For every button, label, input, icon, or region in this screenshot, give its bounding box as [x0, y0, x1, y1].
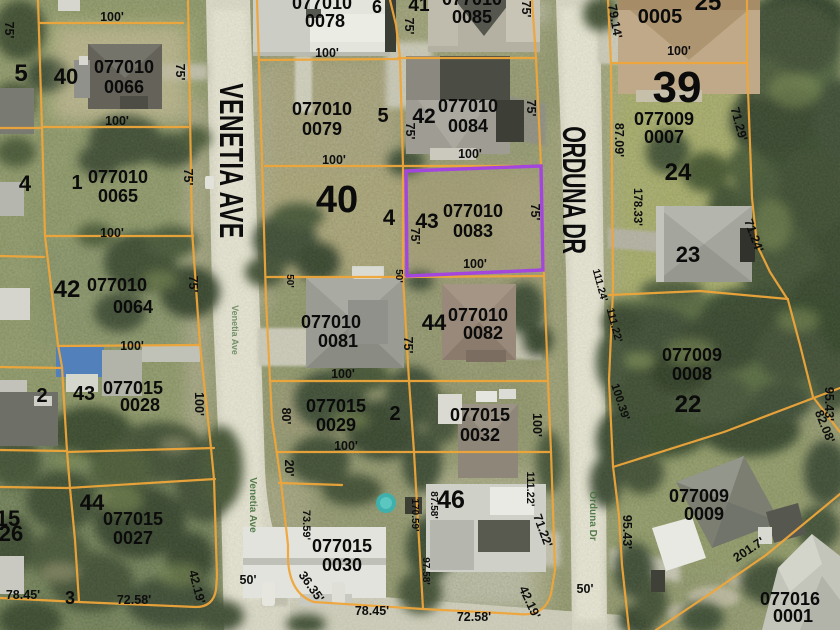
svg-text:25: 25 — [695, 0, 722, 16]
svg-text:50': 50' — [284, 274, 295, 288]
svg-text:44: 44 — [422, 310, 447, 335]
svg-text:100': 100' — [315, 46, 339, 60]
svg-text:22: 22 — [675, 391, 702, 418]
svg-text:72.58': 72.58' — [117, 593, 151, 607]
svg-text:2: 2 — [389, 403, 400, 425]
svg-text:2: 2 — [36, 385, 47, 407]
svg-text:87.09': 87.09' — [612, 123, 626, 157]
svg-text:077010: 077010 — [94, 57, 154, 77]
svg-text:0032: 0032 — [460, 425, 500, 445]
svg-text:077015: 077015 — [306, 396, 366, 416]
svg-text:0065: 0065 — [98, 186, 138, 206]
svg-text:6: 6 — [372, 0, 382, 17]
svg-text:0085: 0085 — [452, 7, 492, 27]
svg-text:0081: 0081 — [318, 331, 358, 351]
svg-text:41: 41 — [408, 0, 430, 16]
svg-text:24: 24 — [665, 159, 692, 186]
svg-text:0030: 0030 — [322, 555, 362, 575]
svg-text:5: 5 — [377, 105, 388, 127]
svg-text:0009: 0009 — [684, 504, 724, 524]
svg-text:0084: 0084 — [448, 116, 488, 136]
svg-text:077015: 077015 — [312, 536, 372, 556]
svg-text:100': 100' — [458, 147, 482, 161]
svg-text:100': 100' — [322, 153, 346, 167]
svg-text:75': 75' — [402, 18, 416, 35]
svg-text:111.22': 111.22' — [524, 471, 536, 506]
svg-text:077010: 077010 — [448, 305, 508, 325]
svg-text:077009: 077009 — [662, 345, 722, 365]
svg-text:50': 50' — [393, 269, 404, 283]
svg-text:75': 75' — [519, 1, 533, 18]
svg-text:0079: 0079 — [302, 119, 342, 139]
svg-text:4: 4 — [19, 171, 32, 196]
svg-text:0007: 0007 — [644, 127, 684, 147]
svg-text:100': 100' — [334, 439, 358, 453]
svg-text:077010: 077010 — [438, 96, 498, 116]
svg-text:50': 50' — [577, 582, 594, 596]
svg-text:0027: 0027 — [113, 528, 153, 548]
svg-text:97.58': 97.58' — [420, 557, 431, 584]
svg-text:23: 23 — [676, 242, 700, 267]
svg-text:0028: 0028 — [120, 395, 160, 415]
svg-text:0008: 0008 — [672, 364, 712, 384]
svg-text:0083: 0083 — [453, 221, 493, 241]
svg-text:077009: 077009 — [669, 486, 729, 506]
svg-text:Venetia Ave: Venetia Ave — [247, 477, 258, 533]
svg-text:42: 42 — [54, 276, 81, 303]
svg-text:100': 100' — [105, 114, 129, 128]
svg-text:75': 75' — [186, 276, 200, 293]
svg-text:46: 46 — [437, 486, 465, 514]
svg-text:1: 1 — [71, 172, 82, 194]
svg-text:75': 75' — [528, 204, 542, 221]
svg-text:87.58': 87.58' — [428, 491, 439, 518]
svg-text:43: 43 — [73, 383, 95, 405]
svg-text:077010: 077010 — [292, 99, 352, 119]
svg-text:0029: 0029 — [316, 415, 356, 435]
svg-text:39: 39 — [653, 63, 702, 112]
svg-text:Orduna Dr: Orduna Dr — [587, 491, 598, 541]
svg-text:0078: 0078 — [305, 11, 345, 31]
svg-text:78.45': 78.45' — [355, 604, 389, 618]
svg-text:44: 44 — [80, 490, 105, 515]
svg-text:4: 4 — [383, 205, 396, 230]
svg-text:75': 75' — [524, 100, 538, 117]
svg-text:077010: 077010 — [301, 312, 361, 332]
svg-text:73.59': 73.59' — [300, 510, 312, 541]
svg-text:170.59': 170.59' — [409, 499, 420, 532]
svg-text:100': 100' — [120, 339, 144, 353]
svg-text:75': 75' — [2, 22, 16, 39]
svg-text:0066: 0066 — [104, 77, 144, 97]
svg-text:3: 3 — [65, 588, 75, 608]
svg-text:100': 100' — [463, 257, 487, 271]
svg-text:20': 20' — [282, 460, 296, 477]
svg-text:75': 75' — [173, 64, 187, 81]
svg-text:ORDUNA DR: ORDUNA DR — [556, 126, 593, 254]
svg-text:80': 80' — [279, 408, 293, 425]
svg-text:077010: 077010 — [88, 167, 148, 187]
svg-text:0082: 0082 — [463, 323, 503, 343]
svg-text:077010: 077010 — [443, 201, 503, 221]
svg-text:100': 100' — [331, 367, 355, 381]
svg-text:75': 75' — [401, 337, 415, 354]
svg-text:0064: 0064 — [113, 297, 153, 317]
svg-text:077015: 077015 — [103, 509, 163, 529]
svg-text:100': 100' — [667, 44, 691, 58]
svg-text:78.45': 78.45' — [6, 588, 40, 602]
svg-text:0005: 0005 — [638, 6, 683, 28]
svg-text:100': 100' — [100, 226, 124, 240]
svg-text:95.43': 95.43' — [620, 515, 634, 549]
svg-text:40: 40 — [316, 179, 358, 221]
svg-text:0001: 0001 — [773, 606, 813, 626]
svg-text:100': 100' — [100, 10, 124, 24]
svg-text:75': 75' — [408, 228, 422, 245]
svg-text:75': 75' — [403, 123, 417, 140]
svg-text:077009: 077009 — [634, 109, 694, 129]
svg-text:5: 5 — [14, 60, 27, 87]
svg-text:26: 26 — [0, 521, 23, 546]
svg-text:72.58': 72.58' — [457, 610, 491, 624]
svg-text:100': 100' — [530, 413, 544, 437]
svg-text:50': 50' — [240, 573, 257, 587]
svg-text:75': 75' — [181, 169, 195, 186]
svg-text:077015: 077015 — [450, 405, 510, 425]
svg-text:VENETIA AVE: VENETIA AVE — [212, 83, 249, 238]
svg-text:40: 40 — [54, 64, 78, 89]
svg-text:95.43': 95.43' — [822, 387, 836, 421]
svg-text:100': 100' — [192, 392, 206, 416]
svg-text:Venetia Ave: Venetia Ave — [230, 305, 240, 355]
svg-text:077010: 077010 — [87, 275, 147, 295]
svg-text:178.33': 178.33' — [631, 188, 643, 226]
